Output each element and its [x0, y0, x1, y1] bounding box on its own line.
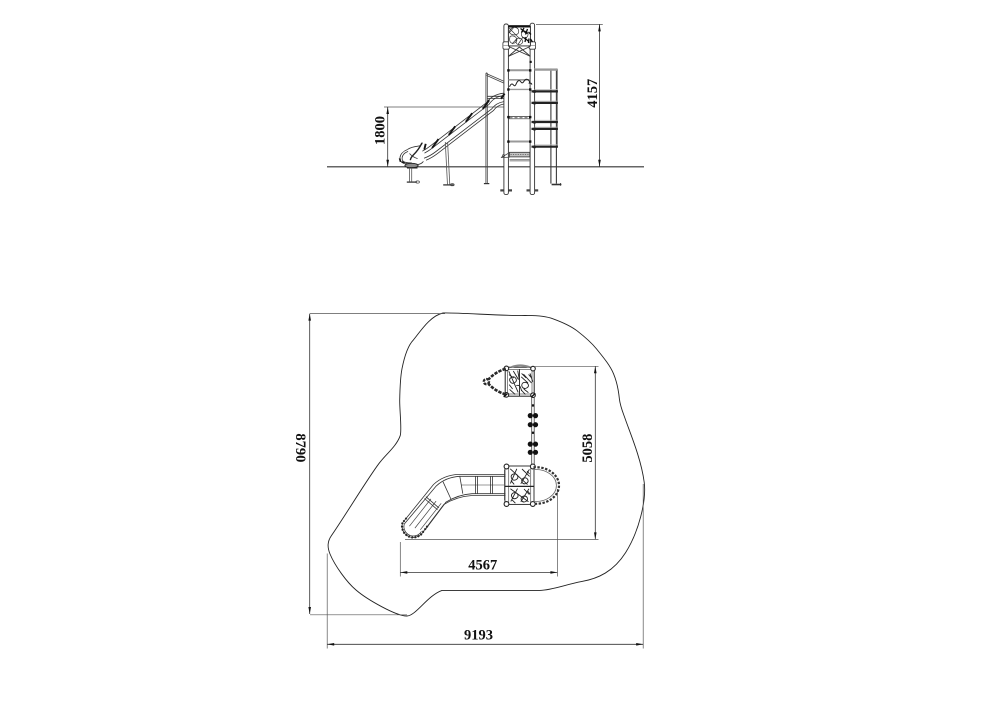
svg-text:4157: 4157	[585, 79, 601, 108]
svg-text:8790: 8790	[292, 433, 308, 462]
svg-text:9193: 9193	[464, 628, 493, 644]
svg-text:4567: 4567	[468, 557, 497, 573]
svg-text:5058: 5058	[580, 434, 596, 463]
svg-text:1800: 1800	[373, 116, 389, 145]
